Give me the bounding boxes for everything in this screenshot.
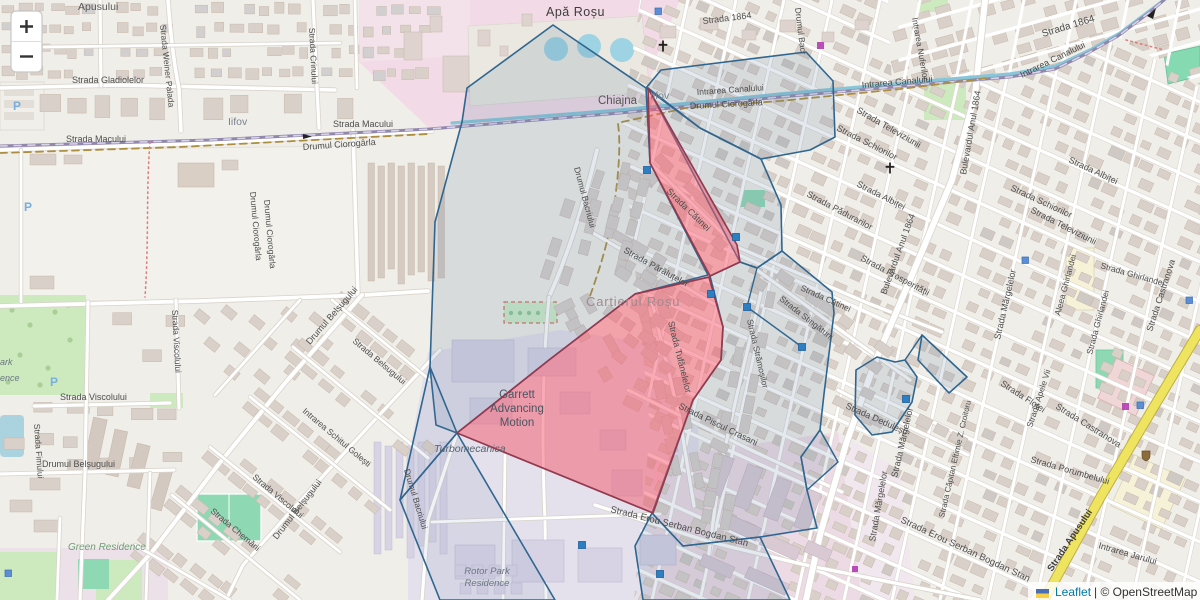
- svg-text:P: P: [13, 99, 21, 113]
- svg-text:Garrett: Garrett: [499, 389, 536, 401]
- svg-text:Residence: Residence: [465, 578, 510, 589]
- svg-text:Strada Macului: Strada Macului: [333, 119, 393, 129]
- svg-text:Turbomecanica: Turbomecanica: [434, 443, 506, 455]
- svg-text:P: P: [24, 200, 32, 214]
- svg-text:Strada Viscolului: Strada Viscolului: [60, 392, 127, 402]
- svg-text:Iifov: Iifov: [228, 116, 248, 128]
- svg-text:Apusului: Apusului: [78, 1, 118, 13]
- svg-text:| © OpenStreetMap: | © OpenStreetMap: [1094, 585, 1198, 599]
- svg-text:ark: ark: [0, 357, 13, 367]
- svg-text:Ilfov: Ilfov: [650, 90, 670, 102]
- svg-text:Apă Roșu: Apă Roșu: [546, 5, 605, 19]
- svg-text:P: P: [50, 375, 58, 389]
- svg-text:Drumul Belșugului: Drumul Belșugului: [42, 459, 115, 469]
- svg-text:ence: ence: [0, 373, 20, 383]
- svg-text:Chiajna: Chiajna: [598, 95, 638, 107]
- svg-text:Leaflet: Leaflet: [1055, 585, 1092, 599]
- svg-text:Cartierul Roșu: Cartierul Roșu: [586, 294, 680, 309]
- svg-text:Advancing: Advancing: [490, 403, 544, 415]
- svg-text:Strada Gladiolelor: Strada Gladiolelor: [72, 75, 144, 85]
- svg-text:Green Residence: Green Residence: [68, 542, 146, 553]
- svg-text:Rotor Park: Rotor Park: [464, 566, 511, 577]
- svg-text:Strada Macului: Strada Macului: [66, 134, 126, 144]
- svg-text:Motion: Motion: [500, 417, 535, 429]
